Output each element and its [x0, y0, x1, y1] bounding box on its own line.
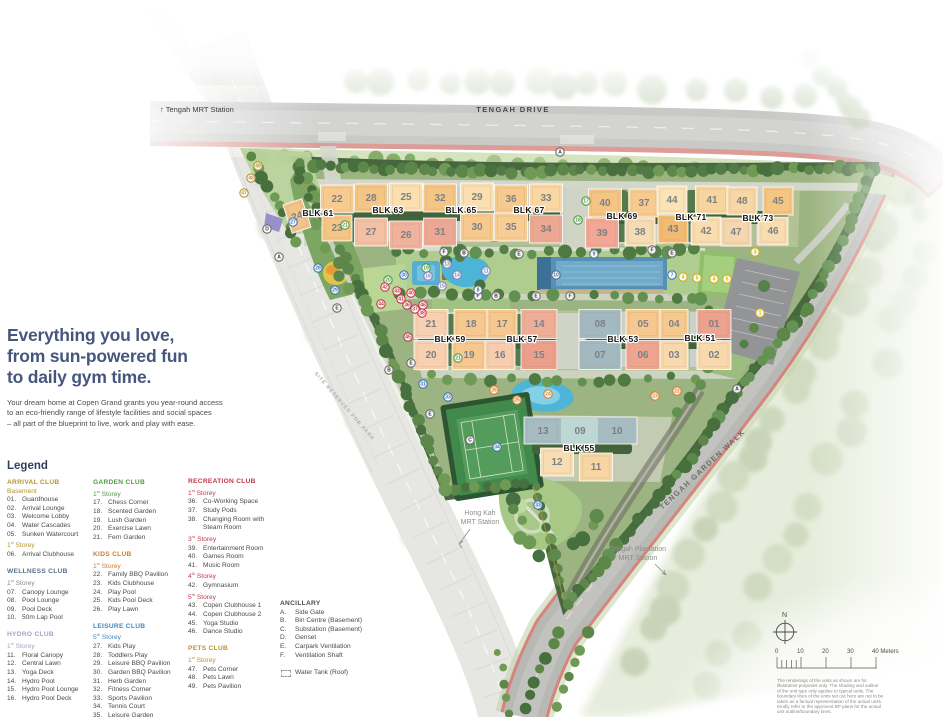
svg-text:41: 41 [706, 195, 718, 206]
svg-text:1: 1 [759, 311, 762, 317]
svg-text:30: 30 [847, 649, 854, 655]
svg-text:23: 23 [652, 394, 658, 400]
svg-text:A: A [558, 150, 562, 156]
svg-text:14: 14 [533, 319, 545, 330]
svg-text:26: 26 [400, 230, 412, 241]
svg-text:21: 21 [342, 223, 348, 229]
svg-text:18: 18 [465, 319, 477, 330]
svg-text:8: 8 [477, 288, 480, 294]
svg-text:07: 07 [594, 350, 606, 361]
svg-text:10: 10 [797, 649, 804, 655]
svg-text:01: 01 [708, 319, 720, 330]
svg-text:39: 39 [596, 228, 608, 239]
svg-text:BLK 69: BLK 69 [606, 211, 637, 221]
svg-text:5: 5 [696, 276, 699, 282]
svg-text:34: 34 [540, 224, 552, 235]
svg-text:37: 37 [638, 198, 650, 209]
svg-text:11: 11 [591, 462, 602, 473]
svg-text:BLK 59: BLK 59 [434, 334, 465, 344]
svg-text:40: 40 [408, 291, 414, 297]
svg-text:02: 02 [708, 350, 720, 361]
svg-text:24: 24 [545, 392, 551, 398]
svg-text:Hong Kah: Hong Kah [464, 510, 495, 517]
svg-text:F: F [650, 248, 653, 254]
svg-text:22: 22 [331, 194, 343, 205]
svg-text:BLK 67: BLK 67 [513, 205, 544, 215]
svg-text:B: B [387, 368, 391, 374]
svg-text:44: 44 [666, 195, 678, 206]
svg-text:D: D [265, 227, 269, 233]
svg-text:19: 19 [423, 266, 429, 272]
svg-text:3: 3 [754, 250, 757, 256]
svg-text:03: 03 [668, 350, 680, 361]
svg-text:48: 48 [736, 196, 748, 207]
svg-text:31: 31 [434, 227, 446, 238]
svg-text:B: B [462, 251, 466, 257]
svg-text:17: 17 [583, 199, 589, 205]
svg-text:B: B [494, 294, 498, 300]
svg-text:BLK 63: BLK 63 [372, 205, 403, 215]
svg-text:37: 37 [412, 307, 418, 313]
svg-text:25: 25 [514, 398, 520, 404]
svg-text:28: 28 [365, 193, 377, 204]
svg-text:BLK 53: BLK 53 [607, 334, 638, 344]
svg-text:7: 7 [671, 273, 674, 279]
svg-text:21: 21 [425, 319, 437, 330]
svg-text:N: N [782, 612, 787, 619]
svg-text:34: 34 [494, 445, 500, 451]
svg-text:45: 45 [772, 196, 784, 207]
svg-text:20: 20 [425, 350, 437, 361]
svg-text:15: 15 [439, 284, 445, 290]
svg-text:15: 15 [533, 350, 545, 361]
svg-text:05: 05 [637, 319, 649, 330]
svg-text:A: A [735, 387, 739, 393]
svg-text:13: 13 [537, 426, 549, 437]
svg-text:18: 18 [575, 218, 581, 224]
svg-text:43: 43 [667, 224, 679, 235]
svg-text:5: 5 [726, 277, 729, 283]
svg-text:20: 20 [822, 649, 829, 655]
svg-text:C: C [468, 438, 472, 444]
svg-text:41: 41 [398, 297, 404, 303]
svg-text:33: 33 [540, 193, 552, 204]
svg-text:30: 30 [471, 222, 483, 233]
svg-text:12: 12 [551, 457, 563, 468]
svg-text:29: 29 [471, 192, 483, 203]
svg-text:25: 25 [400, 192, 412, 203]
svg-text:48: 48 [248, 176, 254, 182]
svg-text:47: 47 [730, 227, 742, 238]
svg-text:46: 46 [767, 226, 779, 237]
svg-text:35: 35 [505, 222, 517, 233]
svg-text:29: 29 [332, 288, 338, 294]
svg-text:28: 28 [315, 266, 321, 272]
svg-text:MRT Station: MRT Station [461, 519, 500, 526]
svg-text:A: A [277, 255, 281, 261]
svg-text:BLK 65: BLK 65 [445, 205, 476, 215]
svg-text:45: 45 [405, 335, 411, 341]
svg-text:BLK 55: BLK 55 [563, 443, 594, 453]
svg-text:06: 06 [637, 350, 649, 361]
svg-text:27: 27 [290, 220, 296, 226]
svg-text:38: 38 [634, 227, 646, 238]
svg-text:46: 46 [420, 303, 426, 309]
svg-text:BLK 51: BLK 51 [684, 333, 715, 343]
svg-text:10: 10 [553, 273, 559, 279]
svg-text:27: 27 [365, 227, 377, 238]
svg-text:22: 22 [674, 389, 680, 395]
svg-text:F: F [442, 250, 445, 256]
svg-text:16: 16 [494, 350, 506, 361]
svg-text:10: 10 [611, 426, 623, 437]
svg-text:33: 33 [535, 503, 541, 509]
svg-text:47: 47 [241, 191, 247, 197]
svg-text:36: 36 [505, 194, 517, 205]
svg-text:40 Meters: 40 Meters [872, 649, 899, 655]
svg-text:BLK 61: BLK 61 [302, 208, 333, 218]
svg-text:30: 30 [401, 273, 407, 279]
svg-text:9: 9 [593, 252, 596, 258]
svg-text:40: 40 [599, 198, 611, 209]
svg-text:43: 43 [394, 289, 400, 295]
svg-text:Tengah Plantation: Tengah Plantation [610, 546, 666, 553]
svg-text:4: 4 [713, 277, 716, 283]
svg-text:09: 09 [574, 426, 586, 437]
svg-text:13: 13 [444, 262, 450, 268]
svg-text:BLK 73: BLK 73 [742, 213, 773, 223]
svg-text:17: 17 [496, 319, 508, 330]
svg-text:42: 42 [700, 226, 712, 237]
svg-text:14: 14 [454, 273, 460, 279]
svg-text:4: 4 [682, 275, 685, 281]
svg-text:08: 08 [594, 319, 606, 330]
svg-text:42: 42 [382, 285, 388, 291]
svg-text:44: 44 [378, 302, 384, 308]
svg-text:32: 32 [434, 193, 446, 204]
svg-text:F: F [568, 294, 571, 300]
svg-text:MRT Station: MRT Station [619, 555, 658, 562]
svg-text:49: 49 [255, 164, 261, 170]
svg-text:11: 11 [483, 269, 489, 275]
svg-text:26: 26 [491, 388, 497, 394]
svg-text:21: 21 [455, 356, 461, 362]
svg-text:unit outline/boundary lines.: unit outline/boundary lines. [777, 709, 832, 714]
svg-text:16: 16 [425, 274, 431, 280]
svg-text:38: 38 [419, 311, 425, 317]
svg-text:04: 04 [668, 319, 680, 330]
svg-text:33: 33 [445, 395, 451, 401]
svg-text:BLK 71: BLK 71 [675, 212, 706, 222]
svg-text:BLK 57: BLK 57 [506, 334, 537, 344]
svg-text:36: 36 [404, 303, 410, 309]
svg-text:19: 19 [463, 350, 475, 361]
svg-text:31: 31 [420, 382, 426, 388]
